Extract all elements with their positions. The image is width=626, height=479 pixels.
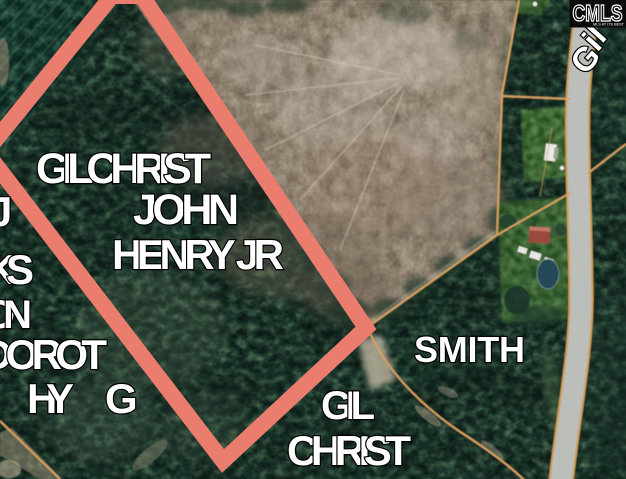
svg-text:SMITH: SMITH [414, 329, 525, 370]
svg-text:J: J [0, 188, 12, 235]
svg-text:DOROT: DOROT [0, 331, 107, 378]
svg-text:KS: KS [0, 246, 34, 293]
svg-text:HY: HY [27, 375, 74, 422]
svg-text:HENRY JR: HENRY JR [112, 231, 284, 278]
svg-text:CHRIST: CHRIST [287, 427, 411, 474]
svg-text:MLS AT ITS BEST: MLS AT ITS BEST [593, 22, 625, 26]
svg-text:JOHN: JOHN [133, 186, 239, 234]
svg-text:G: G [105, 375, 138, 422]
svg-text:GIL: GIL [321, 384, 375, 428]
